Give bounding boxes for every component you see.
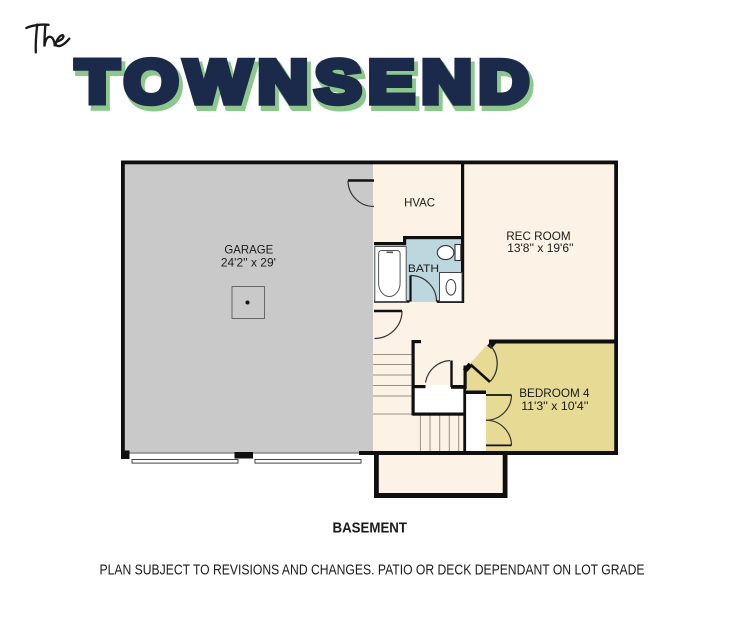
svg-text:HVAC: HVAC bbox=[404, 197, 435, 210]
svg-text:TOWNSEND: TOWNSEND bbox=[76, 48, 536, 116]
svg-text:BASEMENT: BASEMENT bbox=[333, 520, 408, 536]
svg-text:BEDROOM 4: BEDROOM 4 bbox=[519, 386, 589, 400]
svg-text:PLAN SUBJECT TO REVISIONS AND: PLAN SUBJECT TO REVISIONS AND CHANGES. P… bbox=[100, 563, 645, 579]
svg-text:13'8'' x 19'6'': 13'8'' x 19'6'' bbox=[507, 241, 573, 255]
svg-text:11'3'' x 10'4'': 11'3'' x 10'4'' bbox=[521, 399, 588, 413]
svg-text:24'2'' x 29': 24'2'' x 29' bbox=[221, 256, 276, 270]
svg-text:BATH: BATH bbox=[408, 263, 439, 275]
svg-text:GARAGE: GARAGE bbox=[224, 243, 273, 257]
